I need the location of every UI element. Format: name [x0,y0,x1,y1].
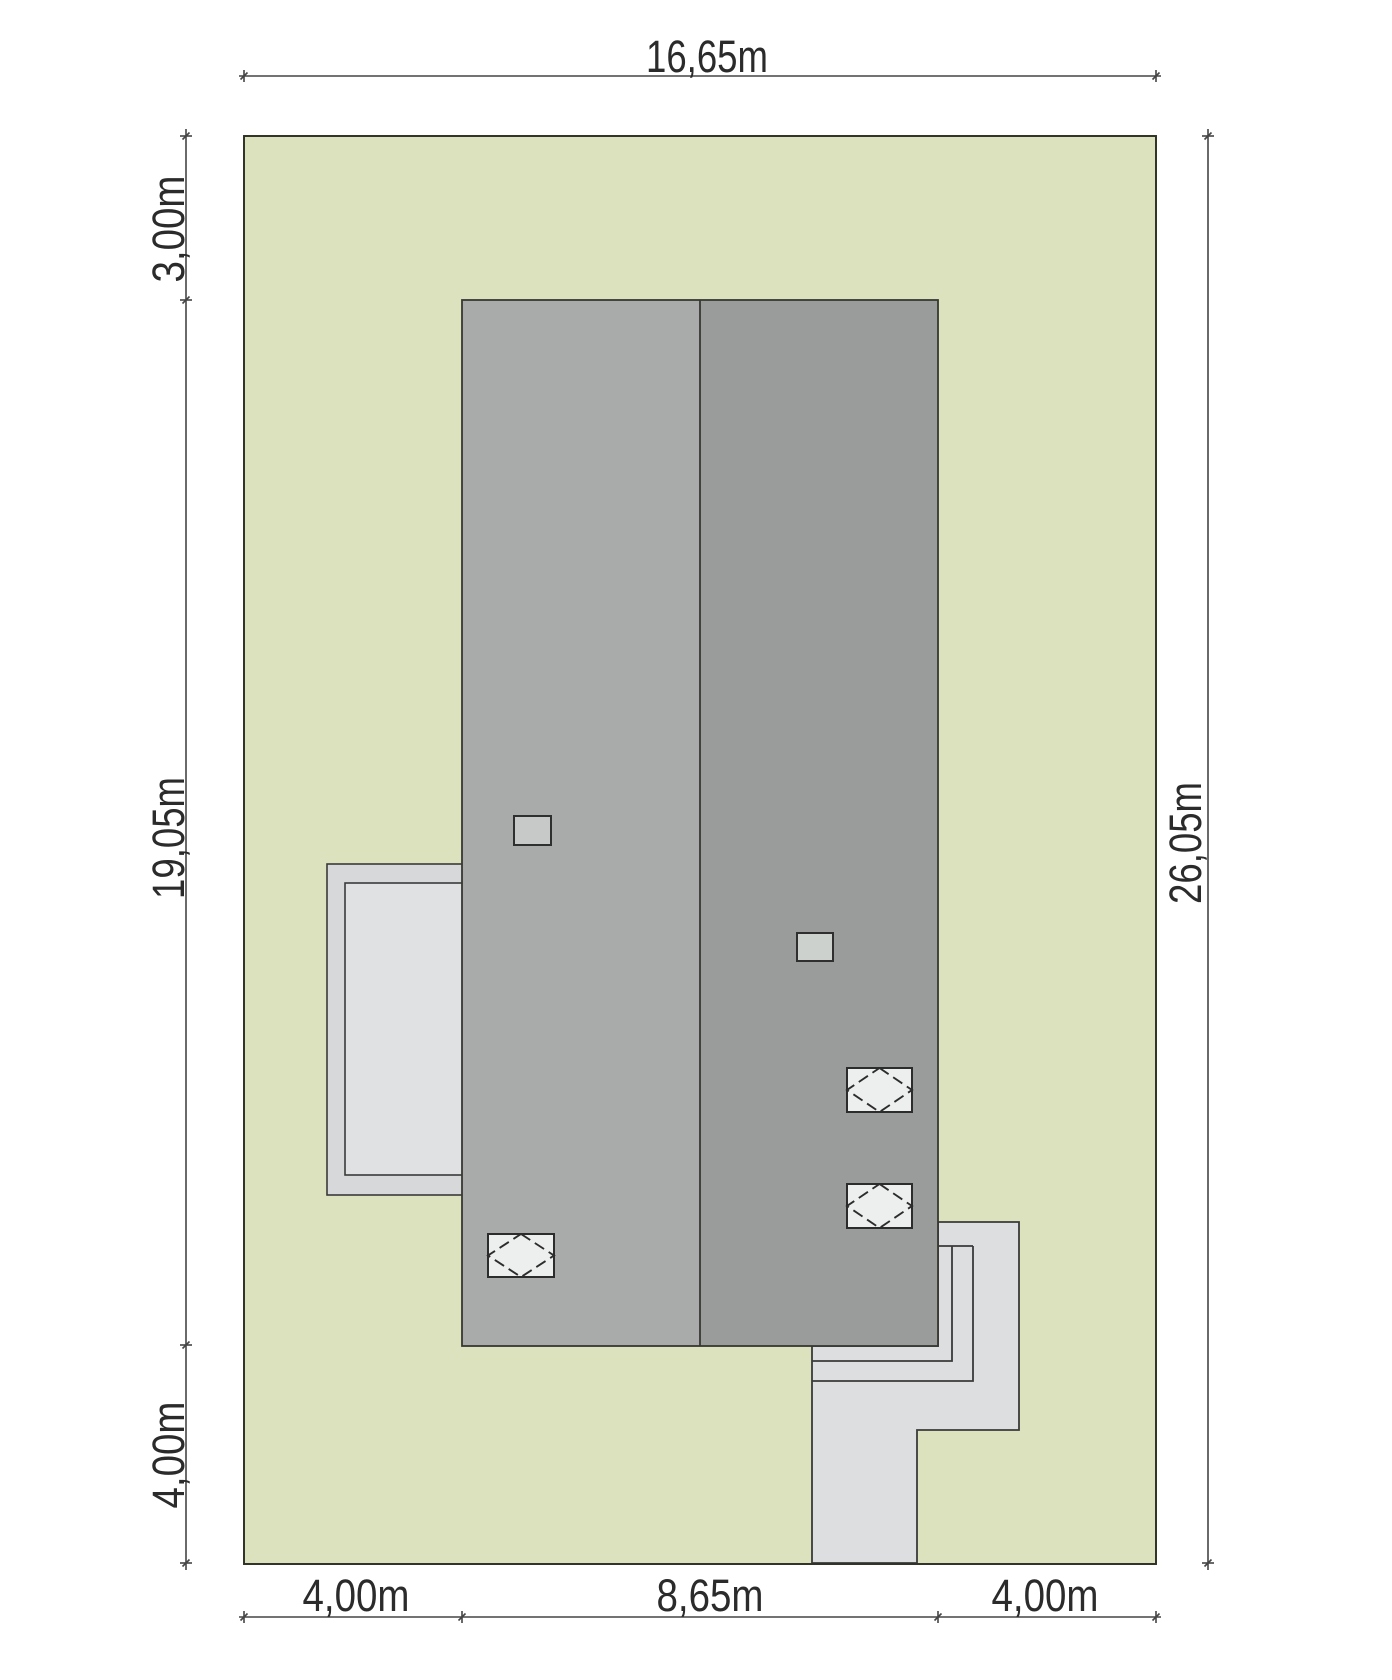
svg-text:4,00m: 4,00m [303,1570,410,1621]
svg-text:26,05m: 26,05m [1160,782,1211,904]
svg-text:19,05m: 19,05m [143,777,194,899]
svg-text:16,65m: 16,65m [646,31,768,82]
svg-text:4,00m: 4,00m [143,1402,194,1509]
svg-text:3,00m: 3,00m [143,176,194,283]
svg-text:8,65m: 8,65m [657,1570,764,1621]
svg-text:4,00m: 4,00m [992,1570,1099,1621]
